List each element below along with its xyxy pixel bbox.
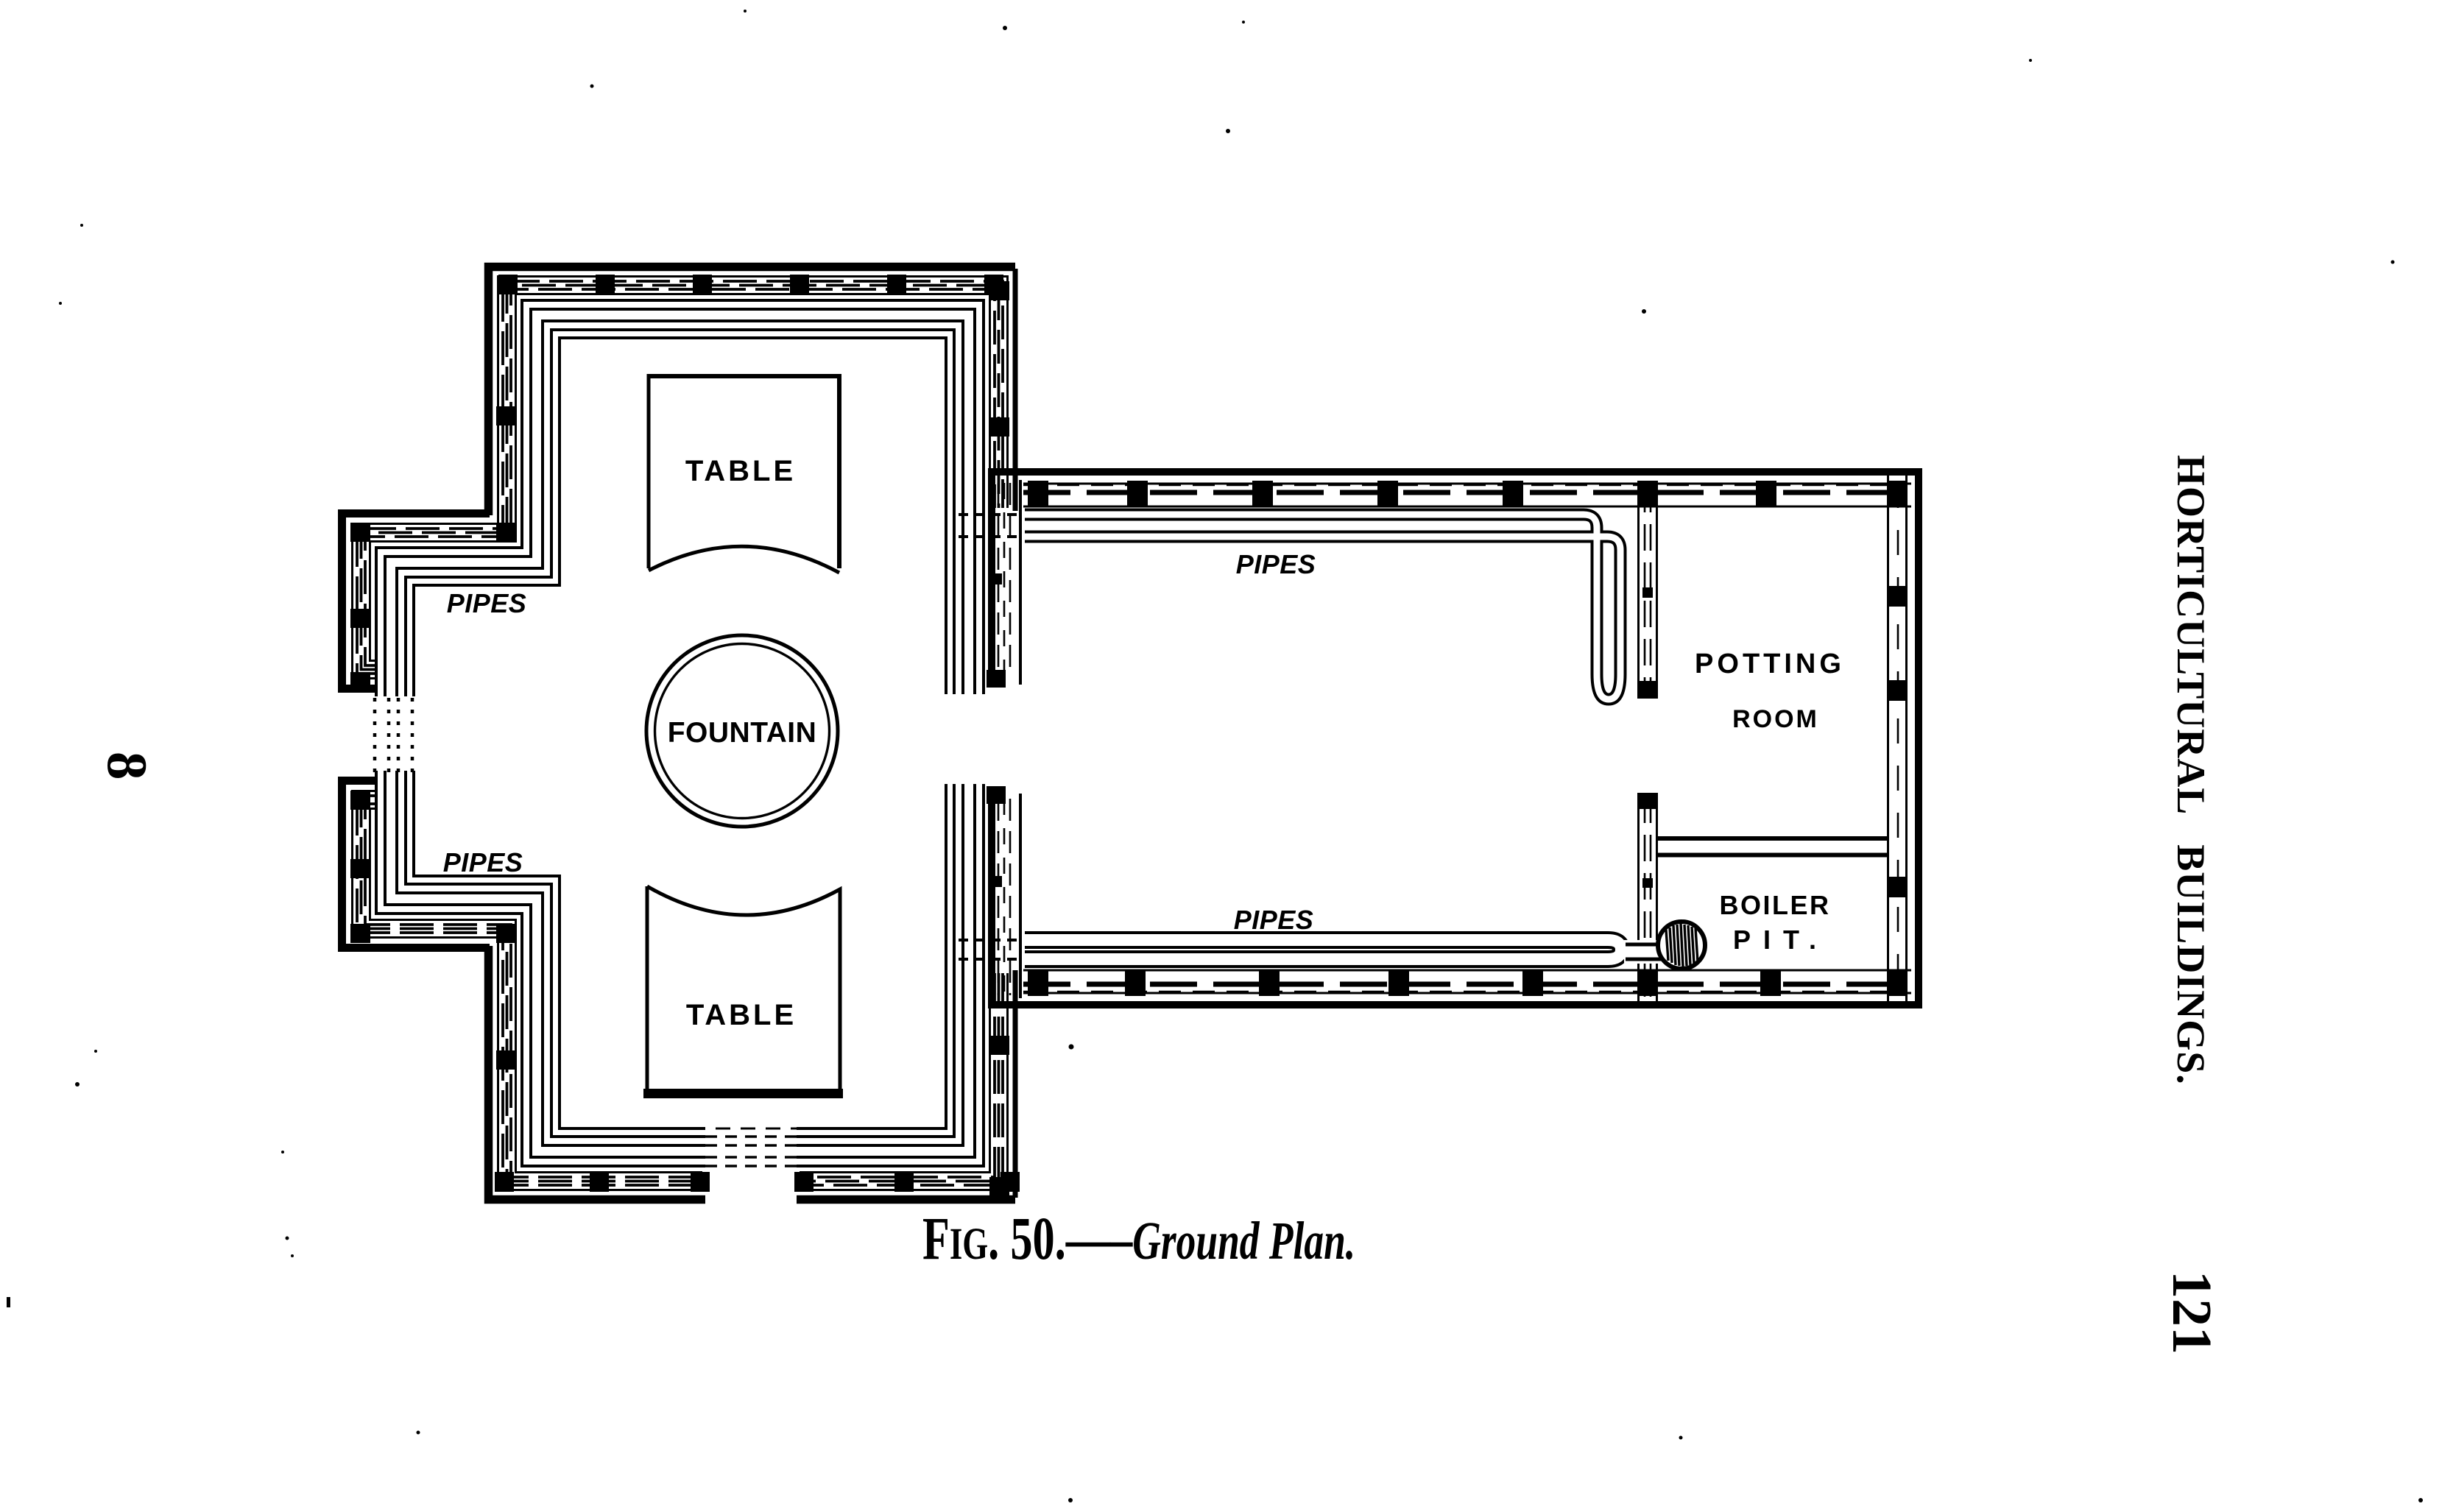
svg-text:BOILER: BOILER — [1719, 890, 1830, 920]
svg-text:ROOM: ROOM — [1732, 705, 1819, 733]
svg-text:PIPES: PIPES — [447, 588, 527, 618]
svg-text:PIT.: PIT. — [1733, 925, 1829, 955]
svg-text:POTTING: POTTING — [1695, 649, 1845, 679]
svg-text:TABLE: TABLE — [685, 455, 796, 487]
svg-text:FOUNTAIN: FOUNTAIN — [668, 717, 817, 749]
svg-text:TABLE: TABLE — [686, 999, 797, 1031]
svg-text:121: 121 — [2161, 1271, 2223, 1354]
svg-text:FIG. 50.—–Ground Plan.: FIG. 50.—–Ground Plan. — [922, 1205, 1355, 1272]
svg-text:PIPES: PIPES — [443, 847, 523, 877]
svg-text:PIPES: PIPES — [1234, 905, 1314, 935]
svg-text:PIPES: PIPES — [1236, 549, 1316, 579]
svg-text:HORTICULTURALBUILDINGS.: HORTICULTURALBUILDINGS. — [2169, 455, 2213, 1085]
svg-text:8: 8 — [96, 752, 159, 780]
